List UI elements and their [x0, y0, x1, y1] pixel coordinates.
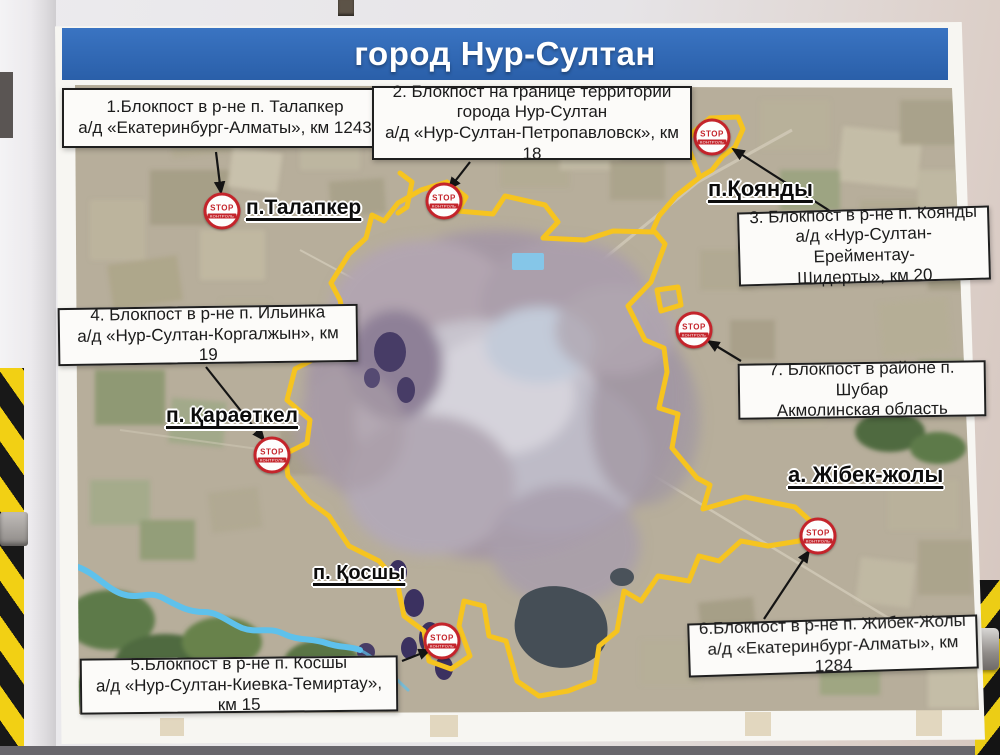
stop-caption: КОНТРОЛЬ: [208, 213, 236, 218]
place-label-kosshy: п. Қосшы: [313, 562, 405, 585]
stop-word: STOP: [430, 634, 454, 642]
place-label-talapker: п.Талапкер: [246, 196, 361, 220]
stop-checkpoint-icon-6: STOP КОНТРОЛЬ: [800, 518, 837, 555]
stop-caption: КОНТРОЛЬ: [698, 139, 726, 144]
stop-checkpoint-icon-4: STOP КОНТРОЛЬ: [254, 437, 291, 474]
callout-checkpoint-2: 2. Блокпост на границе территории города…: [372, 86, 692, 160]
stop-caption: КОНТРОЛЬ: [680, 332, 708, 337]
callout-checkpoint-1: 1.Блокпост в р-не п. Талапкер а/д «Екате…: [62, 88, 388, 148]
stop-checkpoint-icon-1: STOP КОНТРОЛЬ: [204, 193, 241, 230]
stop-word: STOP: [806, 529, 830, 537]
stop-caption: КОНТРОЛЬ: [804, 538, 832, 543]
stop-word: STOP: [682, 323, 706, 331]
callout-checkpoint-4: 4. Блокпост в р-не п. Ильинка а/д «Нур-С…: [58, 304, 359, 366]
blue-lake: [512, 253, 544, 270]
place-label-koyandy: п.Қоянды: [708, 176, 813, 202]
stop-word: STOP: [700, 130, 724, 138]
stop-checkpoint-icon-2: STOP КОНТРОЛЬ: [426, 183, 463, 220]
callout-checkpoint-6: 6.Блокпост в р-не п. Жибек-Жолы а/д «Ека…: [687, 614, 979, 677]
place-label-zhibek-zholy: а. Жібек-жолы: [788, 462, 943, 488]
stop-caption: КОНТРОЛЬ: [430, 203, 458, 208]
stop-checkpoint-icon-5: STOP КОНТРОЛЬ: [424, 623, 461, 660]
callout-checkpoint-3: 3. Блокпост в р-не п. Коянды а/д «Нур-Су…: [737, 205, 991, 286]
photographed-map-poster: город Нур-Султан: [0, 0, 1000, 755]
callout-checkpoint-7: 7. Блокпост в районе п. Шубар Акмолинска…: [738, 360, 987, 419]
stop-caption: КОНТРОЛЬ: [258, 457, 286, 462]
stop-caption: КОНТРОЛЬ: [428, 643, 456, 648]
place-label-karaotkel: п. Қараөткел: [166, 404, 298, 428]
stop-word: STOP: [210, 204, 234, 212]
stop-checkpoint-icon-7: STOP КОНТРОЛЬ: [676, 312, 713, 349]
stop-word: STOP: [260, 448, 284, 456]
stop-checkpoint-icon-3: STOP КОНТРОЛЬ: [694, 119, 731, 156]
stop-word: STOP: [432, 194, 456, 202]
callout-checkpoint-5: 5.Блокпост в р-не п. Косшы а/д «Нур-Султ…: [80, 655, 399, 714]
